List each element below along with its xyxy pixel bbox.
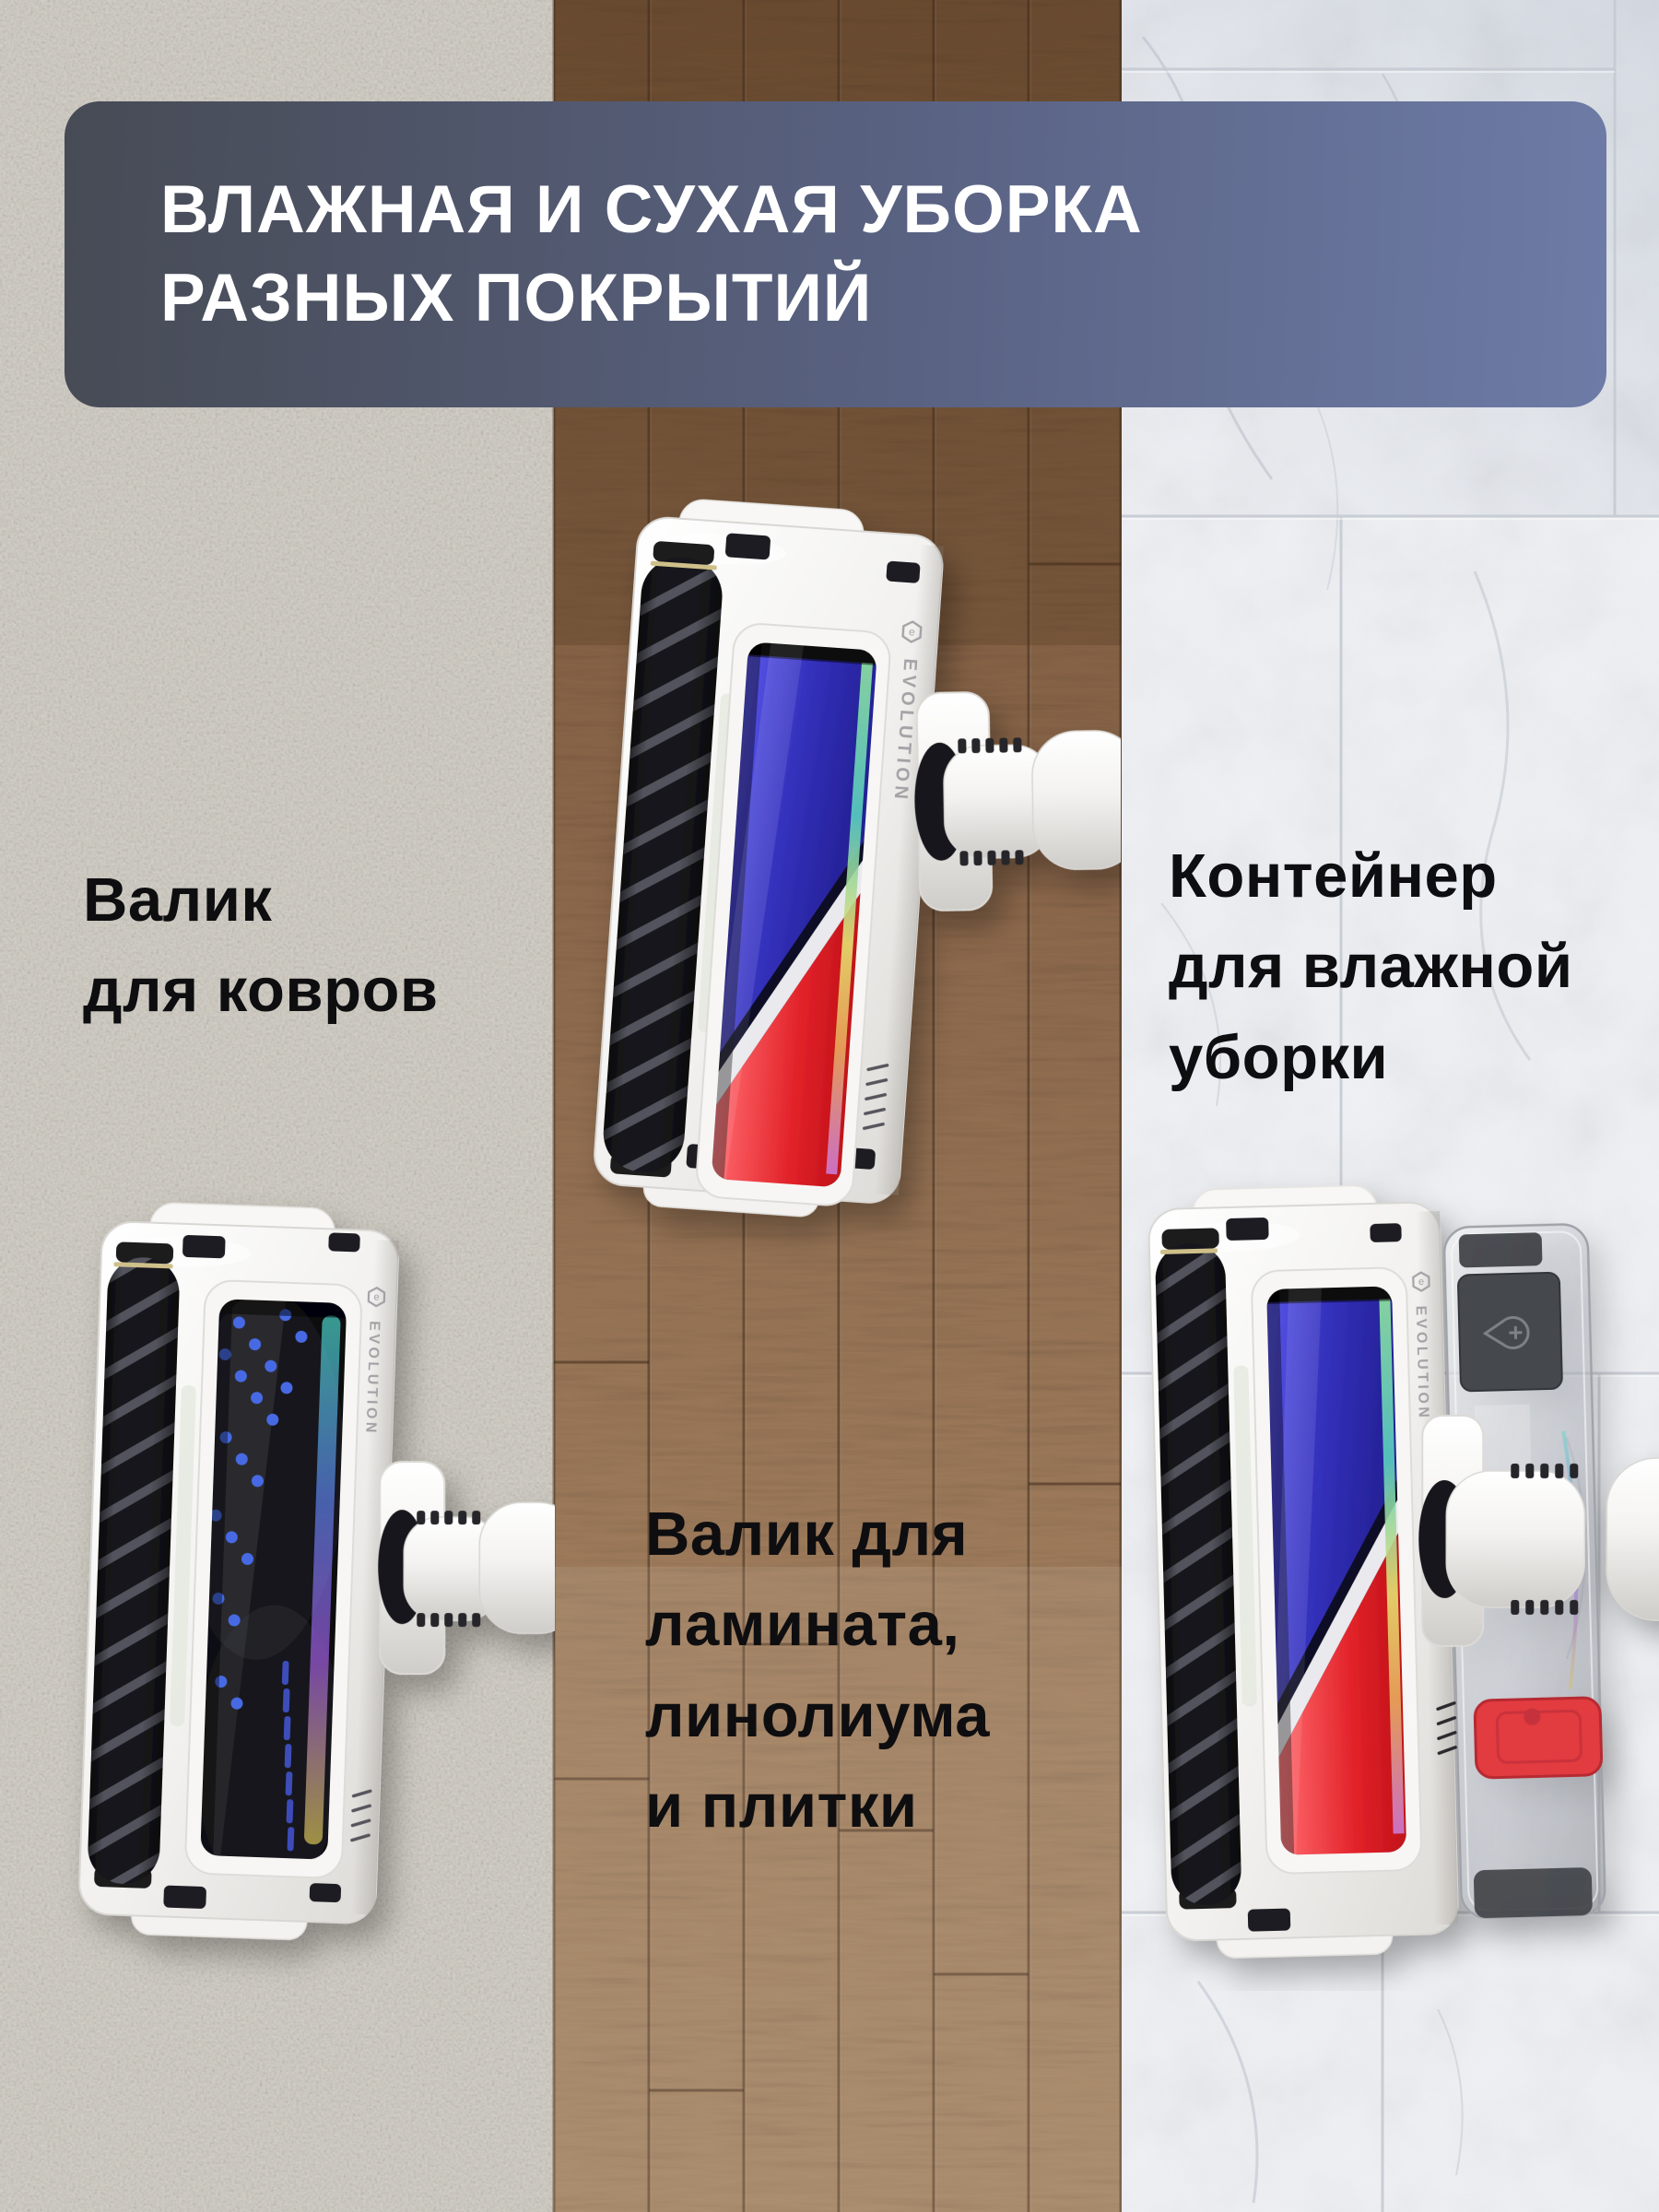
label-line: Контейнер — [1169, 831, 1573, 922]
brand-text: EVOLUTION — [1413, 1305, 1431, 1420]
label-line: для влажной — [1169, 922, 1573, 1012]
svg-text:e: e — [1418, 1277, 1424, 1288]
label-carpet-roller: Валик для ковров — [83, 855, 439, 1037]
label-line: уборки — [1169, 1013, 1573, 1103]
roller-window — [1252, 1267, 1422, 1874]
label-hard-floor-roller: Валик для ламината, линолиума и плитки — [645, 1489, 990, 1853]
wand-tube — [1606, 1458, 1659, 1620]
product-infographic: e EVOLUTION — [0, 0, 1659, 2212]
svg-text:e: e — [373, 1292, 380, 1303]
label-line: для ковров — [83, 946, 439, 1036]
label-line: и плитки — [645, 1761, 990, 1852]
label-line: Валик — [83, 855, 439, 946]
label-line: ламината, — [645, 1580, 990, 1670]
banner-title-line2: РАЗНЫХ ПОКРЫТИЙ — [160, 254, 1606, 343]
banner-title-line1: ВЛАЖНАЯ И СУХАЯ УБОРКА — [160, 166, 1606, 254]
label-wet-container: Контейнер для влажной уборки — [1169, 831, 1573, 1103]
brush-head-wet: e EVOLUTION — [1147, 1176, 1659, 1959]
label-line: линолиума — [645, 1671, 990, 1761]
label-line: Валик для — [645, 1489, 990, 1580]
red-latch — [1475, 1698, 1602, 1779]
svg-text:e: e — [909, 625, 916, 638]
header-banner: ВЛАЖНАЯ И СУХАЯ УБОРКА РАЗНЫХ ПОКРЫТИЙ — [65, 101, 1606, 407]
